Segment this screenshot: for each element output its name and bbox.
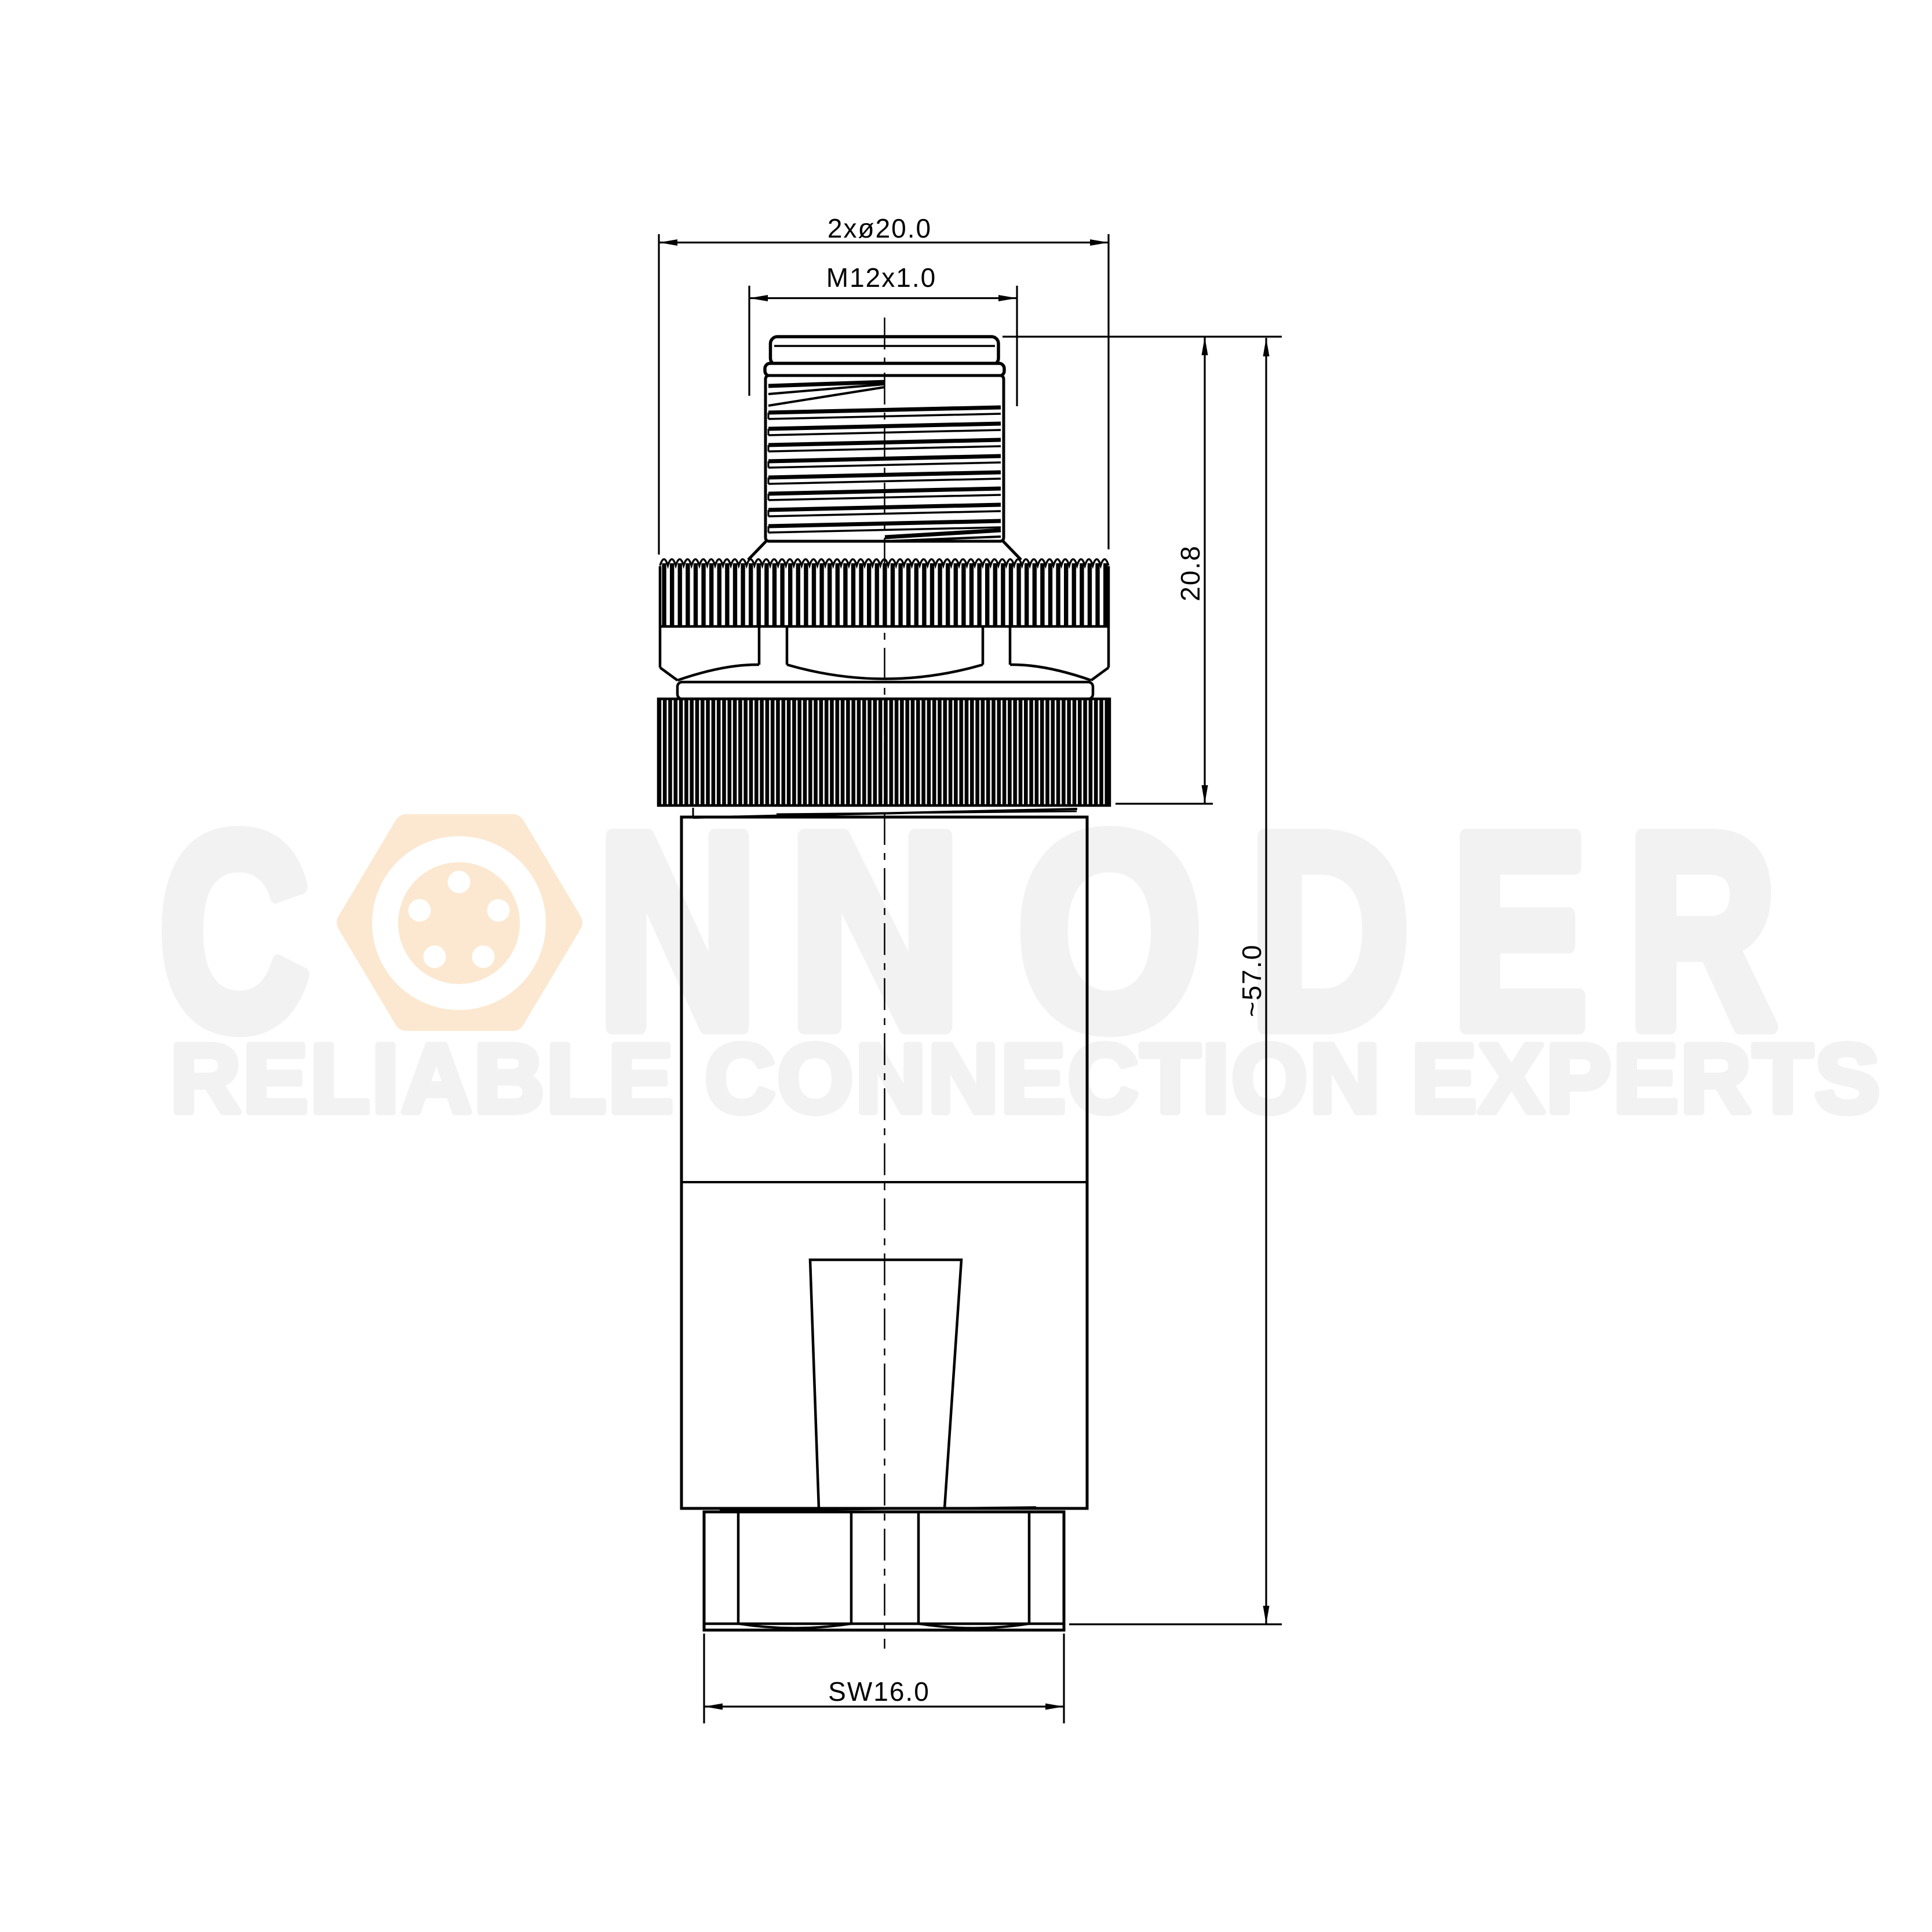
svg-text:20.8: 20.8 [1175,545,1205,602]
svg-text:SW16.0: SW16.0 [828,1676,930,1707]
svg-text:~57.0: ~57.0 [1237,944,1267,1017]
svg-text:M12x1.0: M12x1.0 [826,263,936,293]
svg-text:RELIABLE CONNECTION EXPERTS: RELIABLE CONNECTION EXPERTS [170,1024,1880,1133]
svg-text:2xø20.0: 2xø20.0 [828,213,932,243]
